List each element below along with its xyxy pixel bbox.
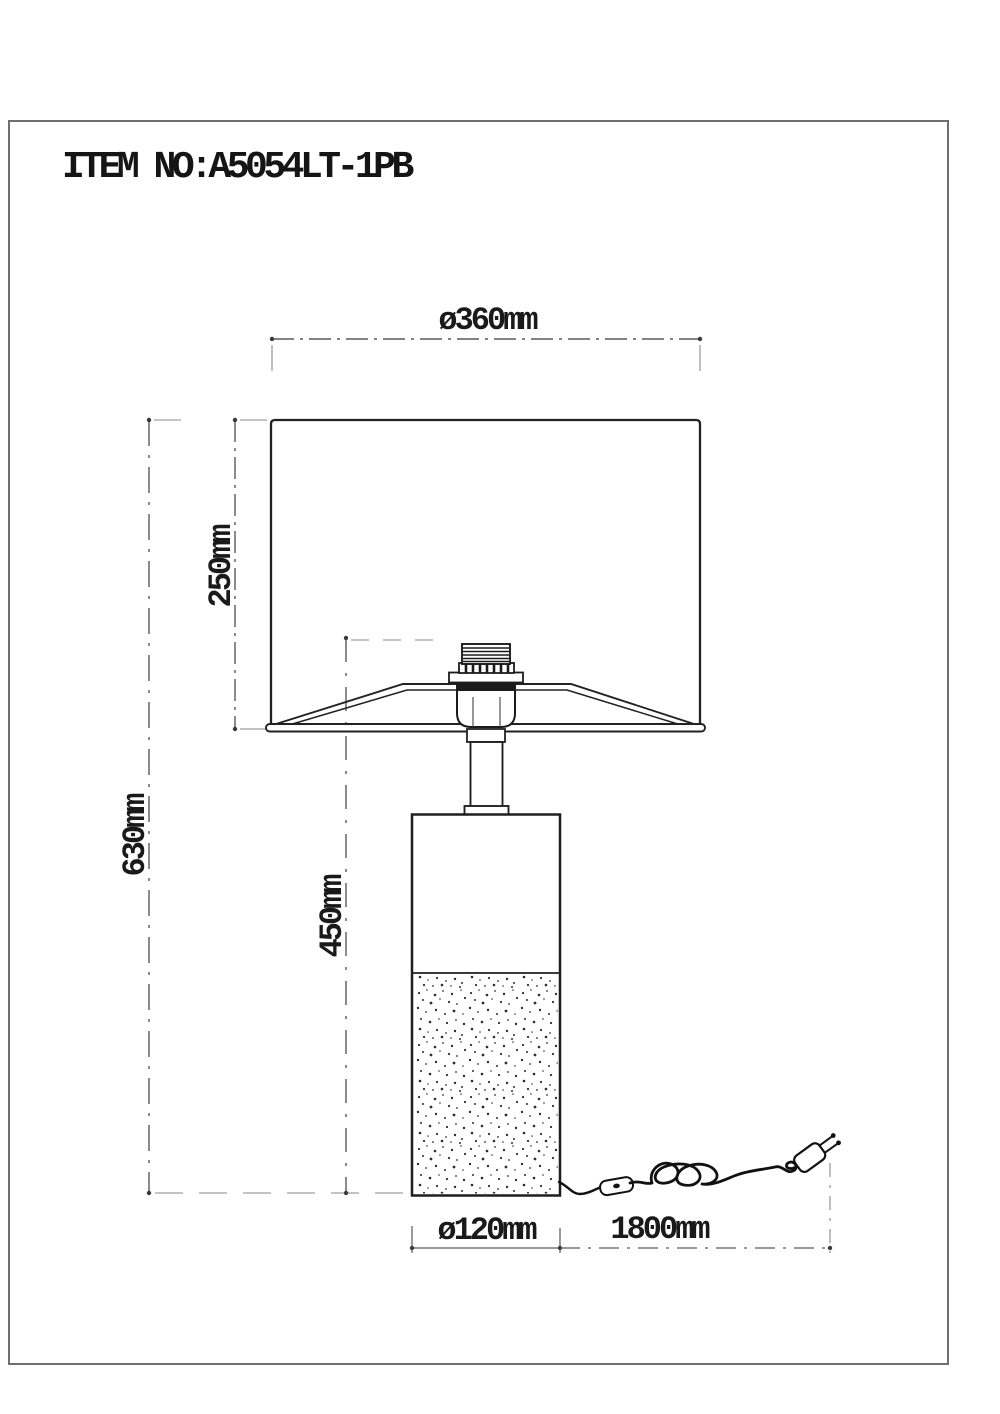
dim-label-shade-height: 250mm — [206, 526, 238, 607]
dim-label-base-diameter: ø120mm — [437, 1215, 534, 1247]
dim-label-shade-diameter: ø360mm — [438, 305, 535, 337]
lamp-drawing-svg — [0, 0, 1000, 1414]
dim-label-cord-length: 1800mm — [610, 1214, 707, 1246]
cord-switch — [599, 1176, 634, 1196]
page: ITEM NO:A5054LT-1PB — [0, 0, 1000, 1414]
dim-shade-diameter-lines — [270, 337, 702, 411]
base-stipple-texture — [415, 976, 558, 1194]
dim-total-height-lines — [147, 418, 408, 1195]
power-cord — [559, 1162, 796, 1196]
dim-label-body-height: 450mm — [317, 876, 349, 957]
power-plug — [792, 1130, 843, 1174]
dim-label-total-height: 630mm — [120, 795, 152, 876]
lamp-stem — [465, 729, 509, 815]
lamp-socket — [449, 644, 523, 727]
lamp-base — [412, 815, 560, 1196]
